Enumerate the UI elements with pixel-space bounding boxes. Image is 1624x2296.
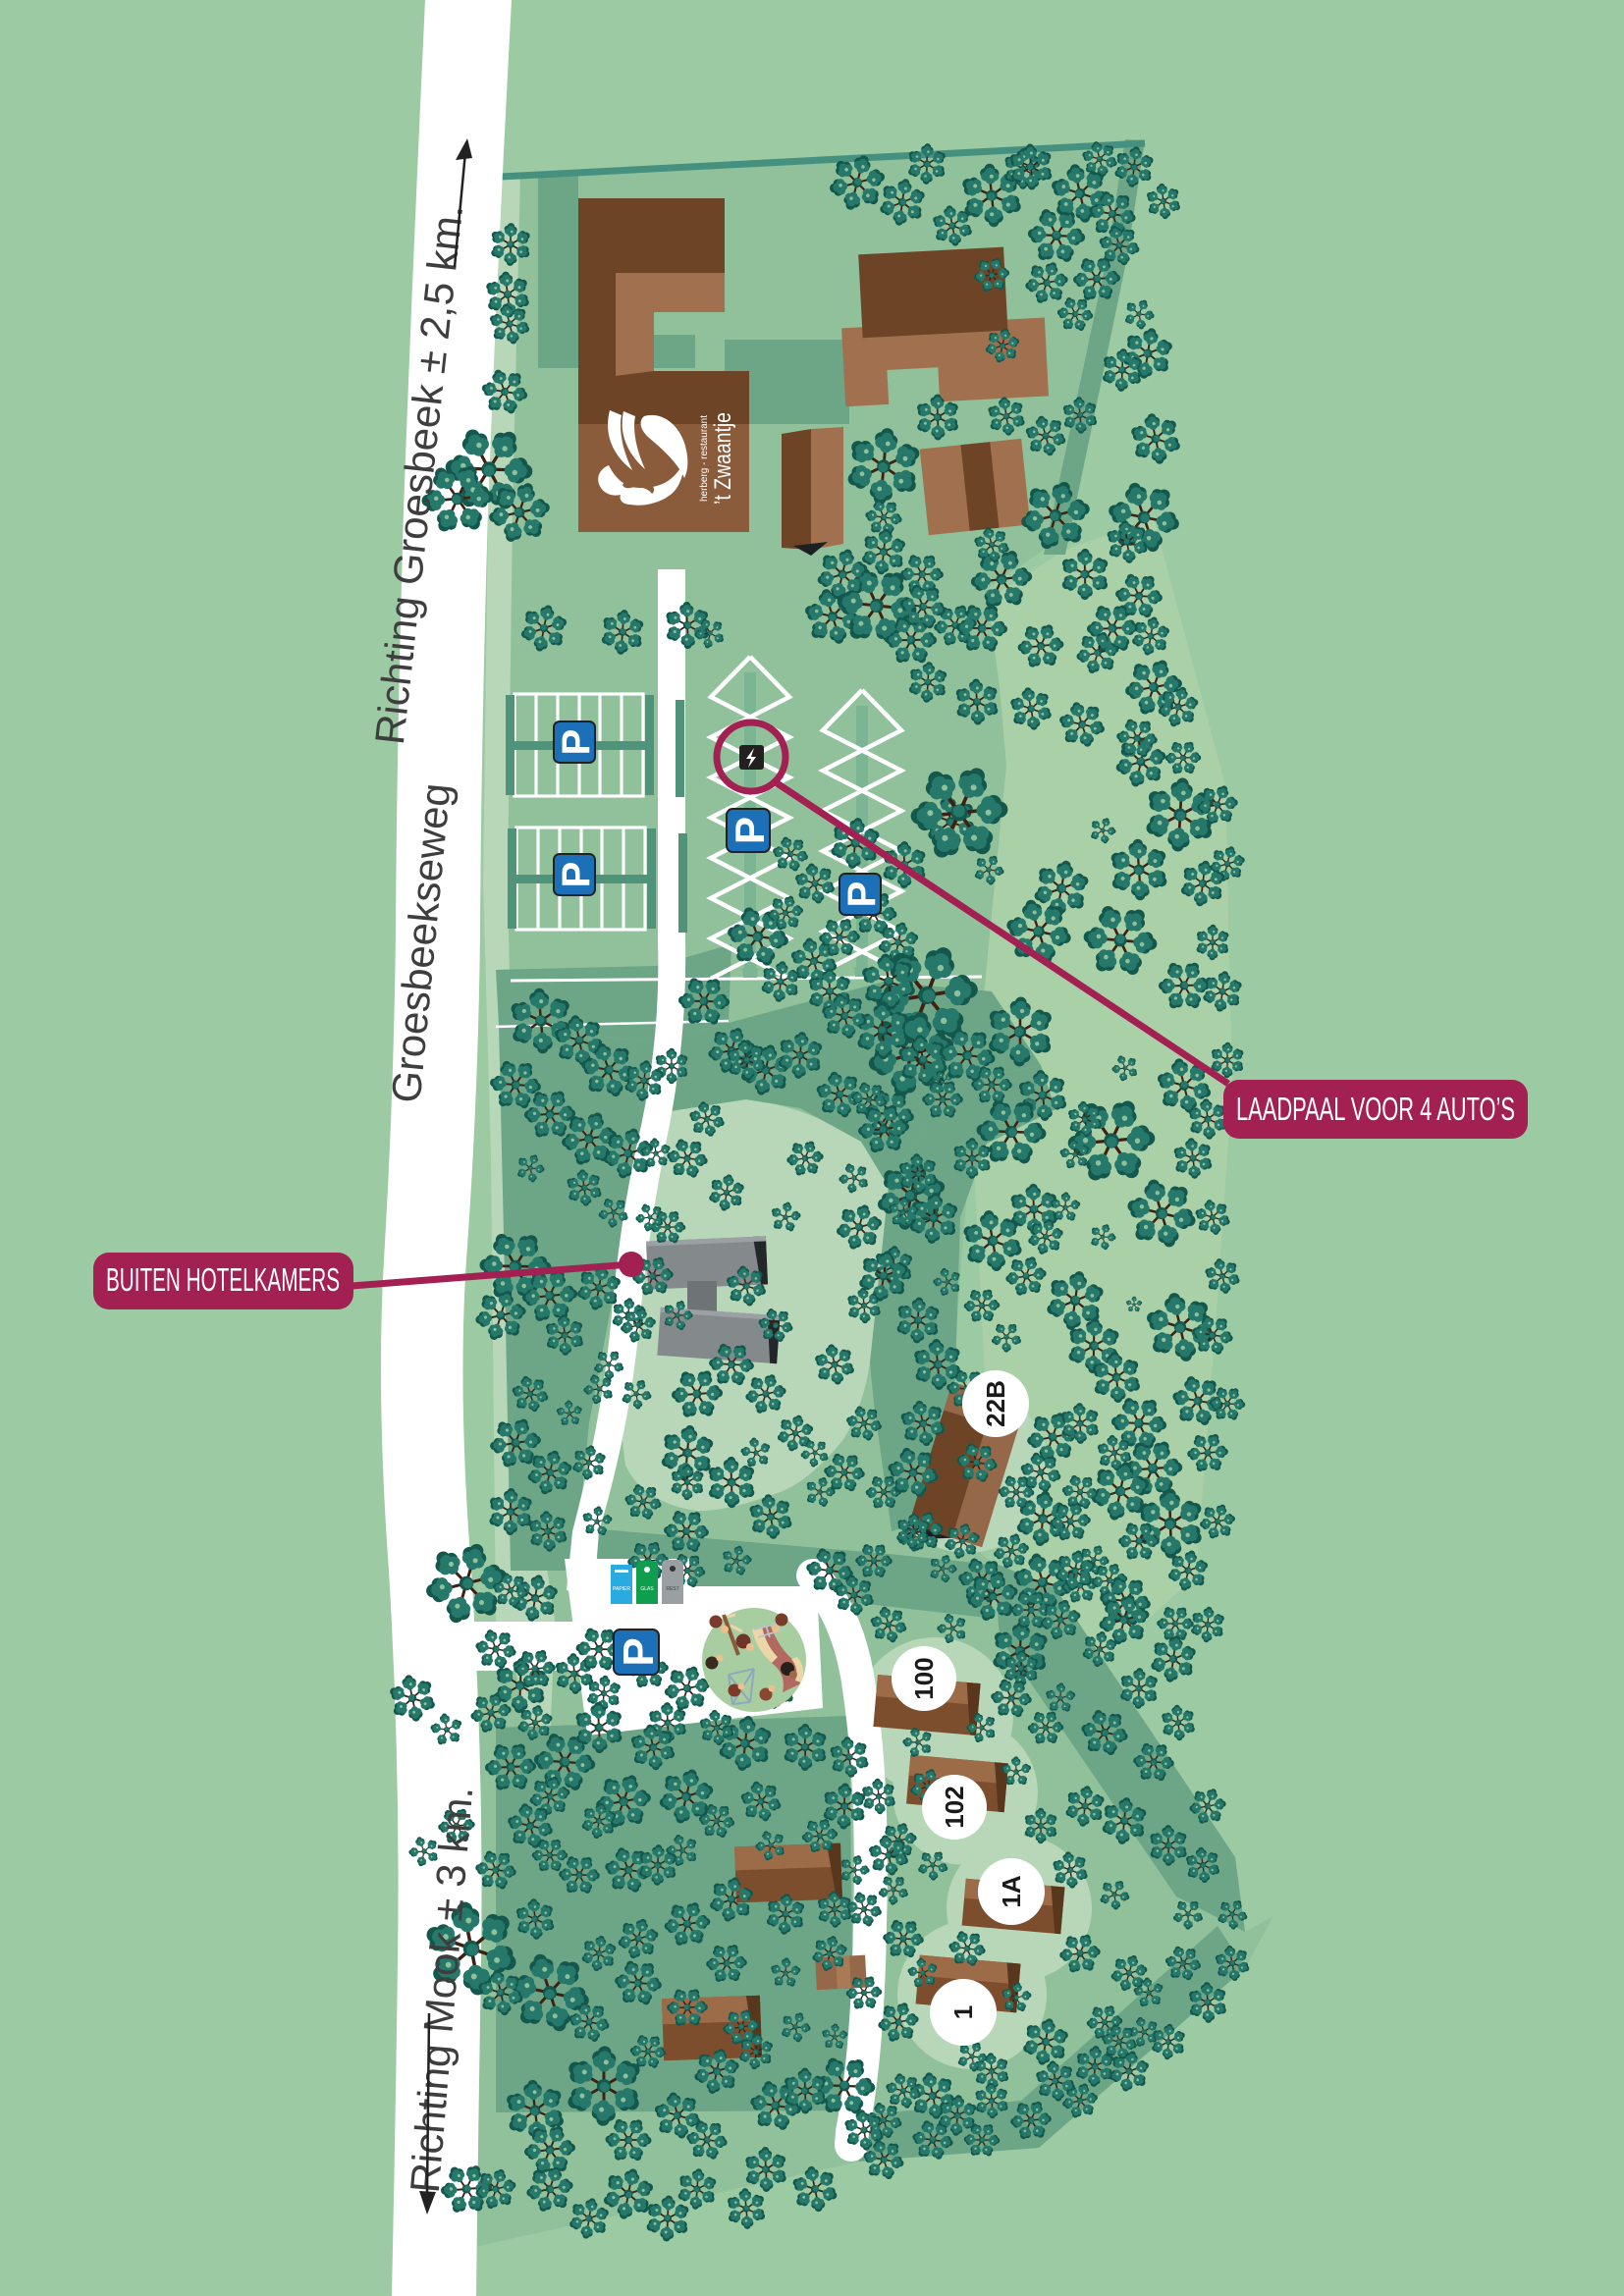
svg-text:BUITEN HOTELKAMERS: BUITEN HOTELKAMERS (106, 1261, 340, 1298)
svg-text:PAPIER: PAPIER (613, 1586, 630, 1592)
svg-text:100: 100 (909, 1657, 939, 1699)
svg-text:’t Zwaantje: ’t Zwaantje (710, 412, 736, 505)
svg-text:22B: 22B (981, 1380, 1010, 1427)
svg-text:1A: 1A (997, 1875, 1026, 1907)
svg-text:REST: REST (666, 1586, 678, 1592)
svg-text:P: P (555, 862, 598, 888)
svg-text:LAADPAAL VOOR 4 AUTO’S: LAADPAAL VOOR 4 AUTO’S (1236, 1091, 1515, 1127)
svg-text:GLAS: GLAS (640, 1586, 654, 1592)
svg-text:P: P (727, 817, 773, 844)
svg-text:herberg - restaurant: herberg - restaurant (699, 415, 710, 502)
svg-text:P: P (615, 1637, 663, 1666)
svg-text:102: 102 (940, 1786, 969, 1828)
svg-text:1: 1 (948, 2005, 978, 2019)
svg-text:P: P (555, 729, 598, 756)
svg-text:P: P (840, 881, 884, 908)
